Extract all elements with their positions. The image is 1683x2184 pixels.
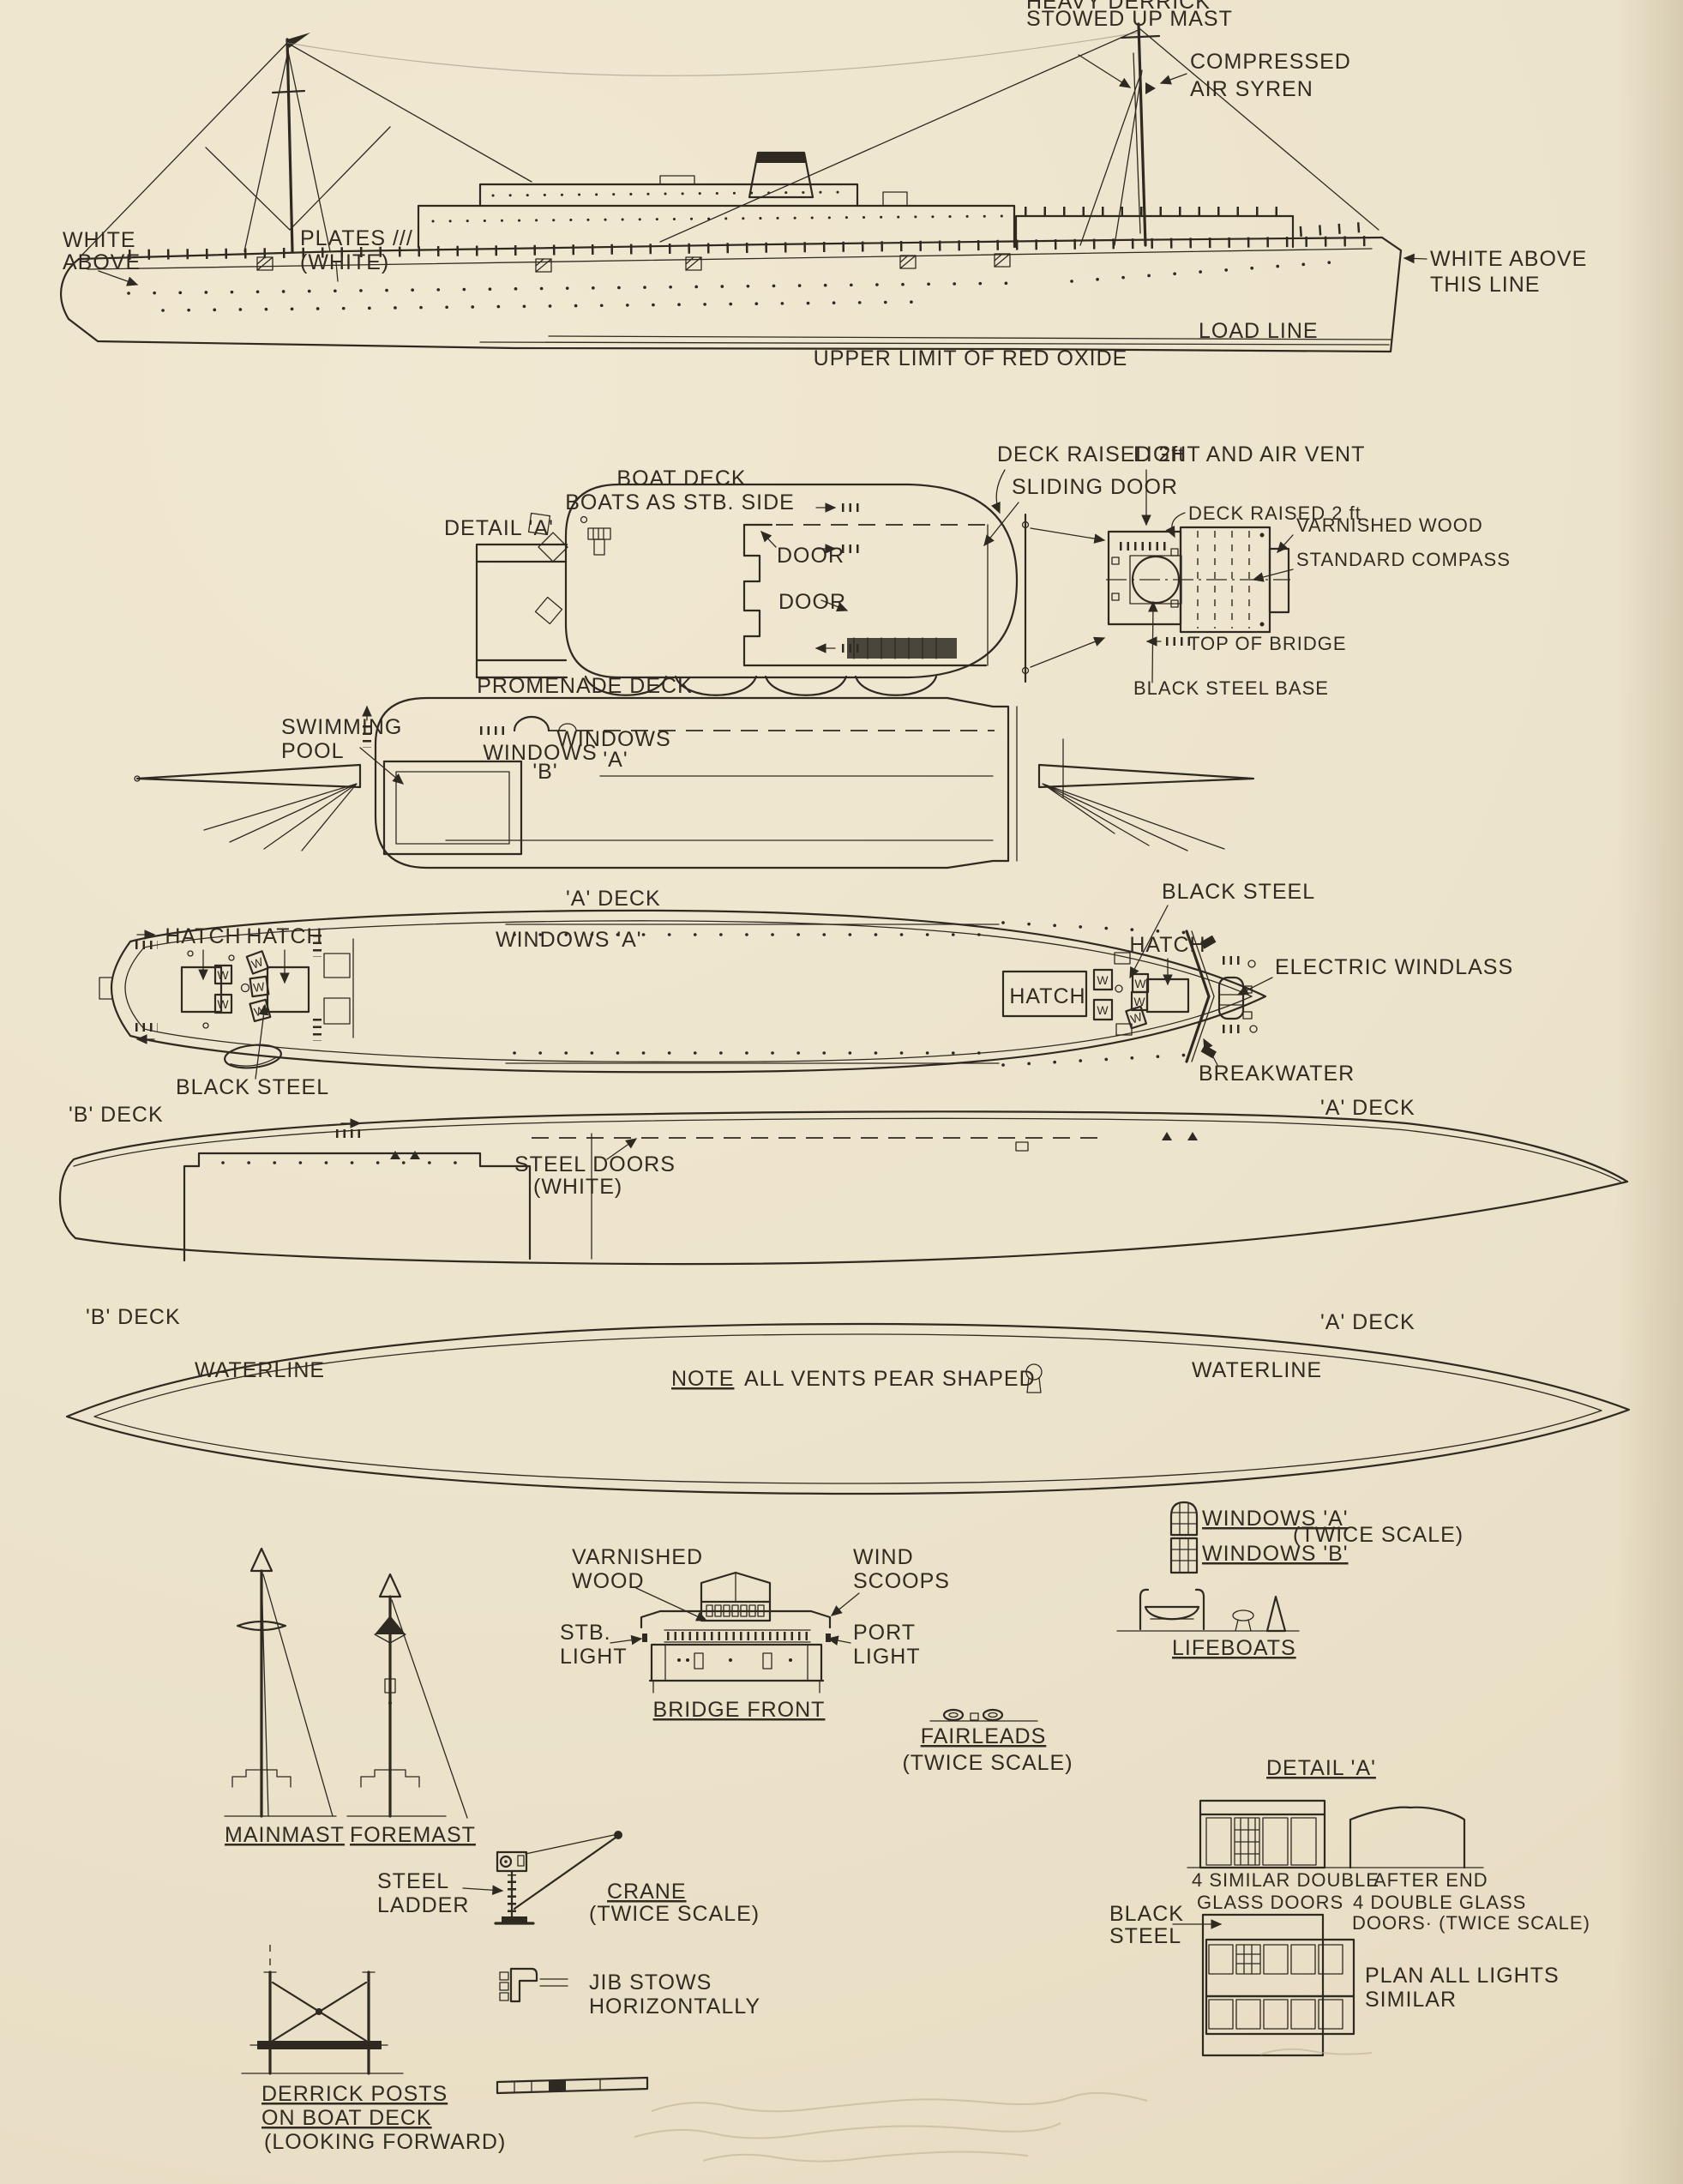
label-white-above: WHITE <box>63 228 136 252</box>
foremast-side <box>81 33 1139 256</box>
label-steel-doors: STEEL DOORS <box>514 1152 676 1176</box>
svg-text:W: W <box>1097 1003 1109 1017</box>
a-deck-plan: 'A' DECK WINDOWS 'A' W W W W W <box>99 880 1513 1099</box>
label-after-end: AFTER END <box>1373 1869 1488 1891</box>
b-deck-outline <box>60 1111 1627 1199</box>
label-steel2: STEEL <box>1109 1924 1181 1948</box>
label-red-oxide: UPPER LIMIT OF RED OXIDE <box>814 346 1128 370</box>
label-ladder: LADDER <box>377 1893 469 1917</box>
label-a-deck-right: 'A' DECK <box>1320 1096 1416 1120</box>
label-varnished-wood: VARNISHED WOOD <box>1296 514 1483 536</box>
label-windows-a-deck: WINDOWS 'A' <box>496 928 642 952</box>
stern-davit-detail <box>135 765 360 851</box>
label-similar: SIMILAR <box>1365 1988 1457 2012</box>
label-light-air-vent: LIGHT AND AIR VENT <box>1133 442 1365 466</box>
top-of-bridge-plan <box>1106 527 1290 641</box>
lifeboats-detail: LIFEBOATS <box>1117 1590 1299 1660</box>
label-this-line: THIS LINE <box>1430 273 1540 297</box>
pencil-scribbles <box>634 2049 1372 2162</box>
winch-boxes-right: W W W W W <box>1094 970 1148 1028</box>
mainmast-detail: MAINMAST <box>225 1549 345 1847</box>
label-white-above-2: ABOVE <box>63 250 141 274</box>
label-white-above-this-line: WHITE ABOVE <box>1430 247 1587 271</box>
windlass <box>1219 978 1243 1019</box>
label-plan-all-lights: PLAN ALL LIGHTS <box>1365 1964 1560 1988</box>
label-scoops: SCOOPS <box>853 1569 950 1593</box>
derrick-posts-detail: DERRICK POSTS ON BOAT DECK (LOOKING FORW… <box>242 1945 506 2154</box>
label-plates-white: (WHITE) <box>300 250 389 274</box>
winch-boxes-left: W W W W W <box>215 951 270 1021</box>
label-swimming: SWIMMING <box>281 715 402 739</box>
label-glass-doors: GLASS DOORS <box>1197 1892 1343 1913</box>
bridge-front-detail: VARNISHED WOOD WIND SCOOPS STB. LIGHT PO… <box>560 1545 950 1722</box>
jib-detail: JIB STOWS HORIZONTALLY <box>497 1969 760 2093</box>
vent-glyph <box>588 528 610 555</box>
label-boat-deck: BOAT DECK <box>616 466 746 490</box>
label-jib-stows: JIB STOWS <box>589 1970 712 1994</box>
svg-text:W: W <box>1097 973 1109 987</box>
label-electric-windlass: ELECTRIC WINDLASS <box>1275 955 1513 979</box>
label-b-deck: 'B' DECK <box>69 1103 164 1127</box>
label-crane: CRANE <box>607 1880 687 1904</box>
label-4-similar: 4 SIMILAR DOUBLE <box>1192 1869 1379 1891</box>
label-waterline-right: WATERLINE <box>1192 1358 1322 1382</box>
air-syren-glyph <box>1145 82 1156 94</box>
label-stb: STB. <box>560 1621 611 1645</box>
svg-text:W: W <box>252 979 266 995</box>
label-black: BLACK <box>1109 1902 1184 1926</box>
label-breakwater: BREAKWATER <box>1199 1062 1355 1086</box>
label-promenade-deck: PROMENADE DECK <box>477 674 693 698</box>
label-load-line: LOAD LINE <box>1199 319 1319 343</box>
label-wind: WIND <box>853 1545 914 1569</box>
svg-text:W: W <box>1134 977 1146 990</box>
label-detail-a: DETAIL 'A' <box>1266 1756 1376 1780</box>
svg-text:W: W <box>217 968 229 982</box>
label-steel-doors-white: (WHITE) <box>533 1175 622 1199</box>
label-note-rest: ALL VENTS PEAR SHAPED <box>744 1367 1036 1391</box>
aft-deckhouse <box>1016 216 1293 247</box>
glass-screen <box>1023 514 1105 682</box>
label-varnished: VARNISHED <box>572 1545 703 1569</box>
label-windows-b-detail: WINDOWS 'B' <box>1202 1542 1349 1566</box>
label-horizontally: HORIZONTALLY <box>589 1994 760 2019</box>
label-bridge-front: BRIDGE FRONT <box>653 1698 826 1722</box>
fairleads-detail: FAIRLEADS (TWICE SCALE) <box>902 1710 1073 1775</box>
side-elevation: HEAVY DERRICK STOWED UP MAST COMPRESSED … <box>61 0 1587 370</box>
label-pool: POOL <box>281 739 344 763</box>
boat-deck-plan: BOAT DECK BOATS AS STB. SIDE DETAIL 'A' <box>444 442 1511 699</box>
label-air-syren: AIR SYREN <box>1190 77 1313 101</box>
label-windows-b2: 'B' <box>532 760 557 784</box>
detail-a-doors: DETAIL 'A' 4 SIMILAR DOUBLE GLASS DOORS … <box>1187 1756 1590 1934</box>
label-twice-scale-crane: (TWICE SCALE) <box>589 1902 760 1926</box>
waterline-plan: 'B' DECK 'A' DECK WATERLINE WATERLINE NO… <box>67 1305 1629 1494</box>
label-detail-a-plan: DETAIL 'A' <box>444 516 554 540</box>
label-mainmast: MAINMAST <box>225 1823 345 1847</box>
label-hatch-3: HATCH <box>1009 984 1085 1008</box>
main-deckhouse <box>418 206 1014 247</box>
label-derrick-posts: DERRICK POSTS <box>261 2082 448 2106</box>
windows-detail: WINDOWS 'A' (TWICE SCALE) WINDOWS 'B' <box>1171 1502 1464 1573</box>
label-compressed: COMPRESSED <box>1190 50 1351 74</box>
label-stb-light: LIGHT <box>560 1645 628 1669</box>
label-door-2: DOOR <box>778 590 846 614</box>
label-doors-twice-scale: DOORS· (TWICE SCALE) <box>1352 1912 1590 1934</box>
label-hatch-2: HATCH <box>246 924 322 948</box>
promenade-outline <box>376 698 1008 868</box>
label-twice-scale-fairleads: (TWICE SCALE) <box>902 1751 1073 1775</box>
label-hatch-1: HATCH <box>165 924 241 948</box>
label-sliding-door: SLIDING DOOR <box>1012 475 1178 499</box>
waterline-outline <box>67 1324 1629 1494</box>
label-stowed-up-mast: STOWED UP MAST <box>1026 7 1233 31</box>
foremast-detail: FOREMAST <box>347 1574 476 1847</box>
bow-davit-detail <box>1039 739 1253 851</box>
label-looking-forward: (LOOKING FORWARD) <box>264 2130 506 2154</box>
label-port: PORT <box>853 1621 916 1645</box>
label-waterline-left: WATERLINE <box>195 1358 325 1382</box>
label-black-steel-right: BLACK STEEL <box>1162 880 1315 904</box>
a-deck-stern-detail: W W W W W <box>135 935 353 1070</box>
label-fairleads: FAIRLEADS <box>921 1724 1047 1748</box>
ship-plan-drawing: HEAVY DERRICK STOWED UP MAST COMPRESSED … <box>0 0 1683 2184</box>
label-plates: PLATES /// <box>300 226 413 250</box>
label-b-deck-wl: 'B' DECK <box>86 1305 181 1329</box>
b-deck-plan: 'B' DECK 'A' DECK STEEL DOORS (WHITE) <box>60 1096 1627 1264</box>
label-top-of-bridge: TOP OF BRIDGE <box>1188 633 1347 654</box>
promenade-deck-plan: PROMENADE DECK SWIMMING POOL WINDOWS 'B'… <box>135 674 1253 868</box>
label-black-steel-base: BLACK STEEL BASE <box>1133 677 1329 699</box>
label-port-light: LIGHT <box>853 1645 921 1669</box>
label-note: NOTE <box>671 1367 734 1391</box>
stowed-jib <box>497 2078 647 2093</box>
label-on-boat-deck: ON BOAT DECK <box>261 2106 432 2130</box>
window-a-glyph <box>1171 1502 1197 1535</box>
label-door-1: DOOR <box>777 544 845 568</box>
window-b-glyph <box>1171 1538 1197 1573</box>
label-foremast: FOREMAST <box>350 1823 476 1847</box>
boat-deck-house <box>480 184 857 206</box>
ship-plan-page: HEAVY DERRICK STOWED UP MAST COMPRESSED … <box>0 0 1683 2184</box>
label-4-double-glass: 4 DOUBLE GLASS <box>1353 1892 1526 1913</box>
label-hatch-4: HATCH <box>1129 933 1205 957</box>
label-black-steel-left: BLACK STEEL <box>176 1075 329 1099</box>
label-boats-stb: BOATS AS STB. SIDE <box>565 490 795 514</box>
label-lifeboats: LIFEBOATS <box>1172 1636 1296 1660</box>
label-standard-compass: STANDARD COMPASS <box>1296 549 1511 570</box>
label-windows-a2: 'A' <box>603 748 628 772</box>
svg-text:W: W <box>217 997 229 1011</box>
label-steel: STEEL <box>377 1869 449 1893</box>
label-varnished-wood2: WOOD <box>572 1569 645 1593</box>
label-a-deck-wl: 'A' DECK <box>1320 1310 1416 1334</box>
label-a-deck: 'A' DECK <box>566 887 661 911</box>
